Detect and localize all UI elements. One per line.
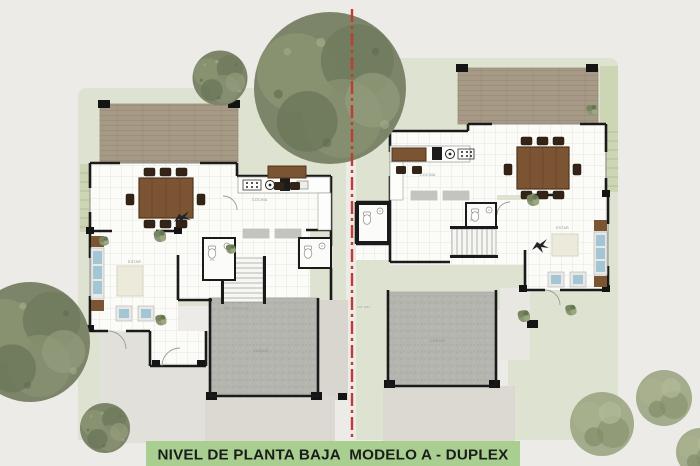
- armchair-cushion: [141, 309, 151, 318]
- tree: [193, 51, 248, 106]
- tree: [0, 282, 90, 402]
- right-entry-walk: [500, 288, 530, 360]
- bush: [570, 392, 634, 456]
- stool: [396, 166, 406, 174]
- wall-pier: [86, 227, 94, 234]
- wall-pier: [602, 190, 610, 197]
- wall-pier: [152, 360, 160, 367]
- right-stairs: [450, 226, 498, 258]
- room-label-bath: WC: [470, 218, 475, 222]
- tree: [254, 12, 406, 164]
- wall-pier: [527, 320, 538, 328]
- side-table: [91, 300, 104, 311]
- kitchen-island: [442, 190, 470, 201]
- sofa-cushion: [596, 235, 605, 246]
- left-side-pad: [318, 300, 348, 400]
- side-table: [594, 220, 607, 231]
- wall-pier: [519, 285, 527, 292]
- right-driveway: [383, 386, 515, 443]
- kitchen-island: [274, 228, 302, 239]
- left-deck: [100, 104, 238, 162]
- bush: [636, 370, 692, 426]
- room-label-living: ESTAR: [556, 226, 569, 230]
- room-label-garage: GARAJE: [253, 349, 269, 353]
- wall-pier: [197, 360, 205, 367]
- stool: [274, 182, 284, 190]
- room-label-kitchen: COCINA: [420, 173, 436, 177]
- sofa-cushion: [93, 251, 102, 264]
- sofa-cushion: [93, 266, 102, 279]
- deck-pier: [456, 64, 468, 72]
- title-banner: NIVEL DE PLANTA BAJA MODELO A - DUPLEX: [146, 441, 520, 466]
- lot-note: LOT. MFL: [357, 305, 371, 309]
- tree: [80, 403, 130, 453]
- floor-plan-canvas: COCINA GARAJE ESTAR WC AMP. HASTA 2.20: [0, 0, 700, 466]
- kitchen-island: [242, 228, 270, 239]
- rug: [117, 266, 143, 296]
- rug: [552, 234, 578, 256]
- side-table: [594, 276, 607, 287]
- bush: [676, 428, 700, 466]
- floor-plan-page: COCINA GARAJE ESTAR WC AMP. HASTA 2.20: [0, 0, 700, 466]
- armchair-cushion: [551, 275, 561, 284]
- room-label-kitchen: COCINA: [252, 198, 268, 202]
- left-wc: [299, 238, 331, 268]
- armchair-cushion: [573, 275, 583, 284]
- deck-pier: [586, 64, 598, 72]
- right-bathroom: [466, 203, 496, 227]
- breakfast-table: [392, 148, 426, 161]
- right-deck: [458, 68, 598, 124]
- sofa-cushion: [93, 281, 102, 294]
- right-wc: [358, 204, 388, 242]
- deck-pier: [98, 100, 110, 108]
- yard-pier: [338, 393, 347, 400]
- room-label-living: ESTAR: [128, 260, 141, 264]
- kitchen-island: [410, 190, 438, 201]
- left-driveway: [205, 396, 335, 443]
- sofa-cushion: [596, 248, 605, 259]
- room-label-bath: WC: [210, 258, 215, 262]
- page-title: NIVEL DE PLANTA BAJA MODELO A - DUPLEX: [158, 447, 509, 464]
- armchair-cushion: [119, 309, 129, 318]
- left-garage-slab: [210, 298, 318, 396]
- room-label-garage: GARAJE: [430, 339, 446, 343]
- stool: [290, 182, 300, 190]
- sofa-cushion: [596, 261, 605, 272]
- stair-note: AMP. HASTA 2.20: [224, 306, 249, 310]
- fridge-icon: [432, 147, 442, 160]
- breakfast-table: [268, 166, 306, 178]
